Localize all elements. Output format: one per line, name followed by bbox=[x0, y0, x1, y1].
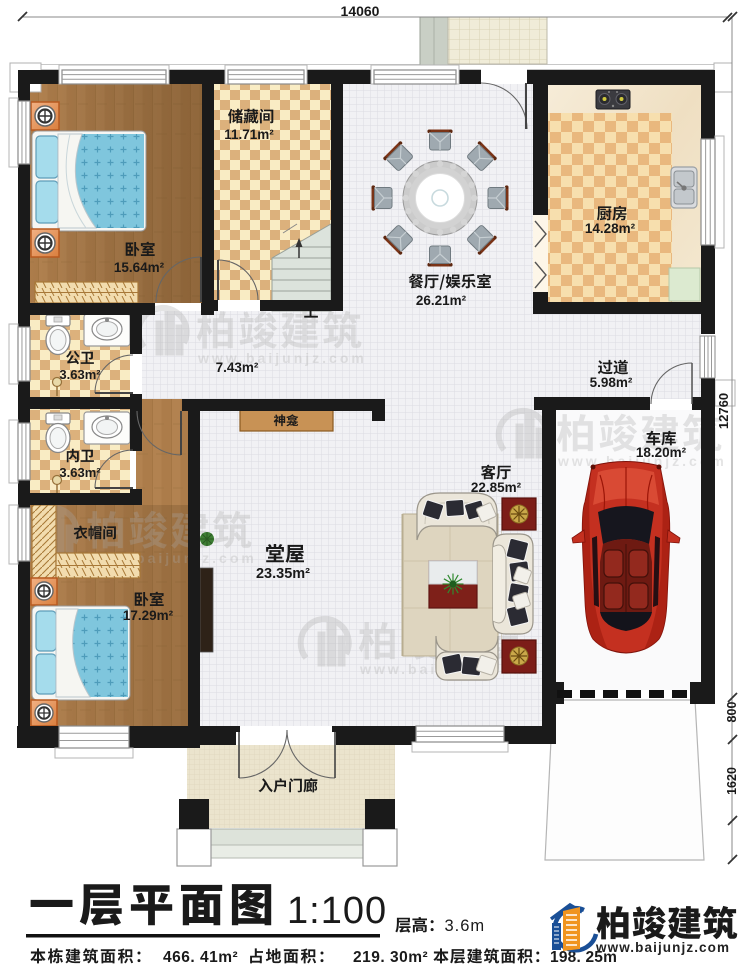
svg-text:3.6m: 3.6m bbox=[445, 917, 486, 935]
svg-text:219. 30m²: 219. 30m² bbox=[353, 949, 428, 966]
svg-text:17.29m²: 17.29m² bbox=[123, 608, 174, 623]
svg-text:5.98m²: 5.98m² bbox=[590, 375, 633, 390]
svg-text:3.63m²: 3.63m² bbox=[59, 367, 101, 382]
svg-text:1:100: 1:100 bbox=[287, 890, 387, 932]
svg-text:18.20m²: 18.20m² bbox=[636, 445, 687, 460]
svg-text:15.64m²: 15.64m² bbox=[114, 260, 165, 275]
svg-text:www.baijunjz.com: www.baijunjz.com bbox=[595, 940, 730, 955]
svg-text:14060: 14060 bbox=[341, 3, 380, 19]
svg-text:14.28m²: 14.28m² bbox=[585, 221, 636, 236]
svg-text:26.21m²: 26.21m² bbox=[416, 293, 467, 308]
svg-text:800: 800 bbox=[725, 702, 739, 723]
svg-text:7.43m²: 7.43m² bbox=[216, 360, 259, 375]
svg-text:1620: 1620 bbox=[725, 767, 739, 795]
svg-text:466. 41m²: 466. 41m² bbox=[163, 949, 238, 966]
svg-text:11.71m²: 11.71m² bbox=[224, 127, 274, 142]
svg-text:22.85m²: 22.85m² bbox=[471, 480, 522, 495]
svg-text:12760: 12760 bbox=[716, 393, 731, 429]
svg-text:23.35m²: 23.35m² bbox=[256, 566, 310, 582]
svg-text:3.63m²: 3.63m² bbox=[59, 465, 101, 480]
